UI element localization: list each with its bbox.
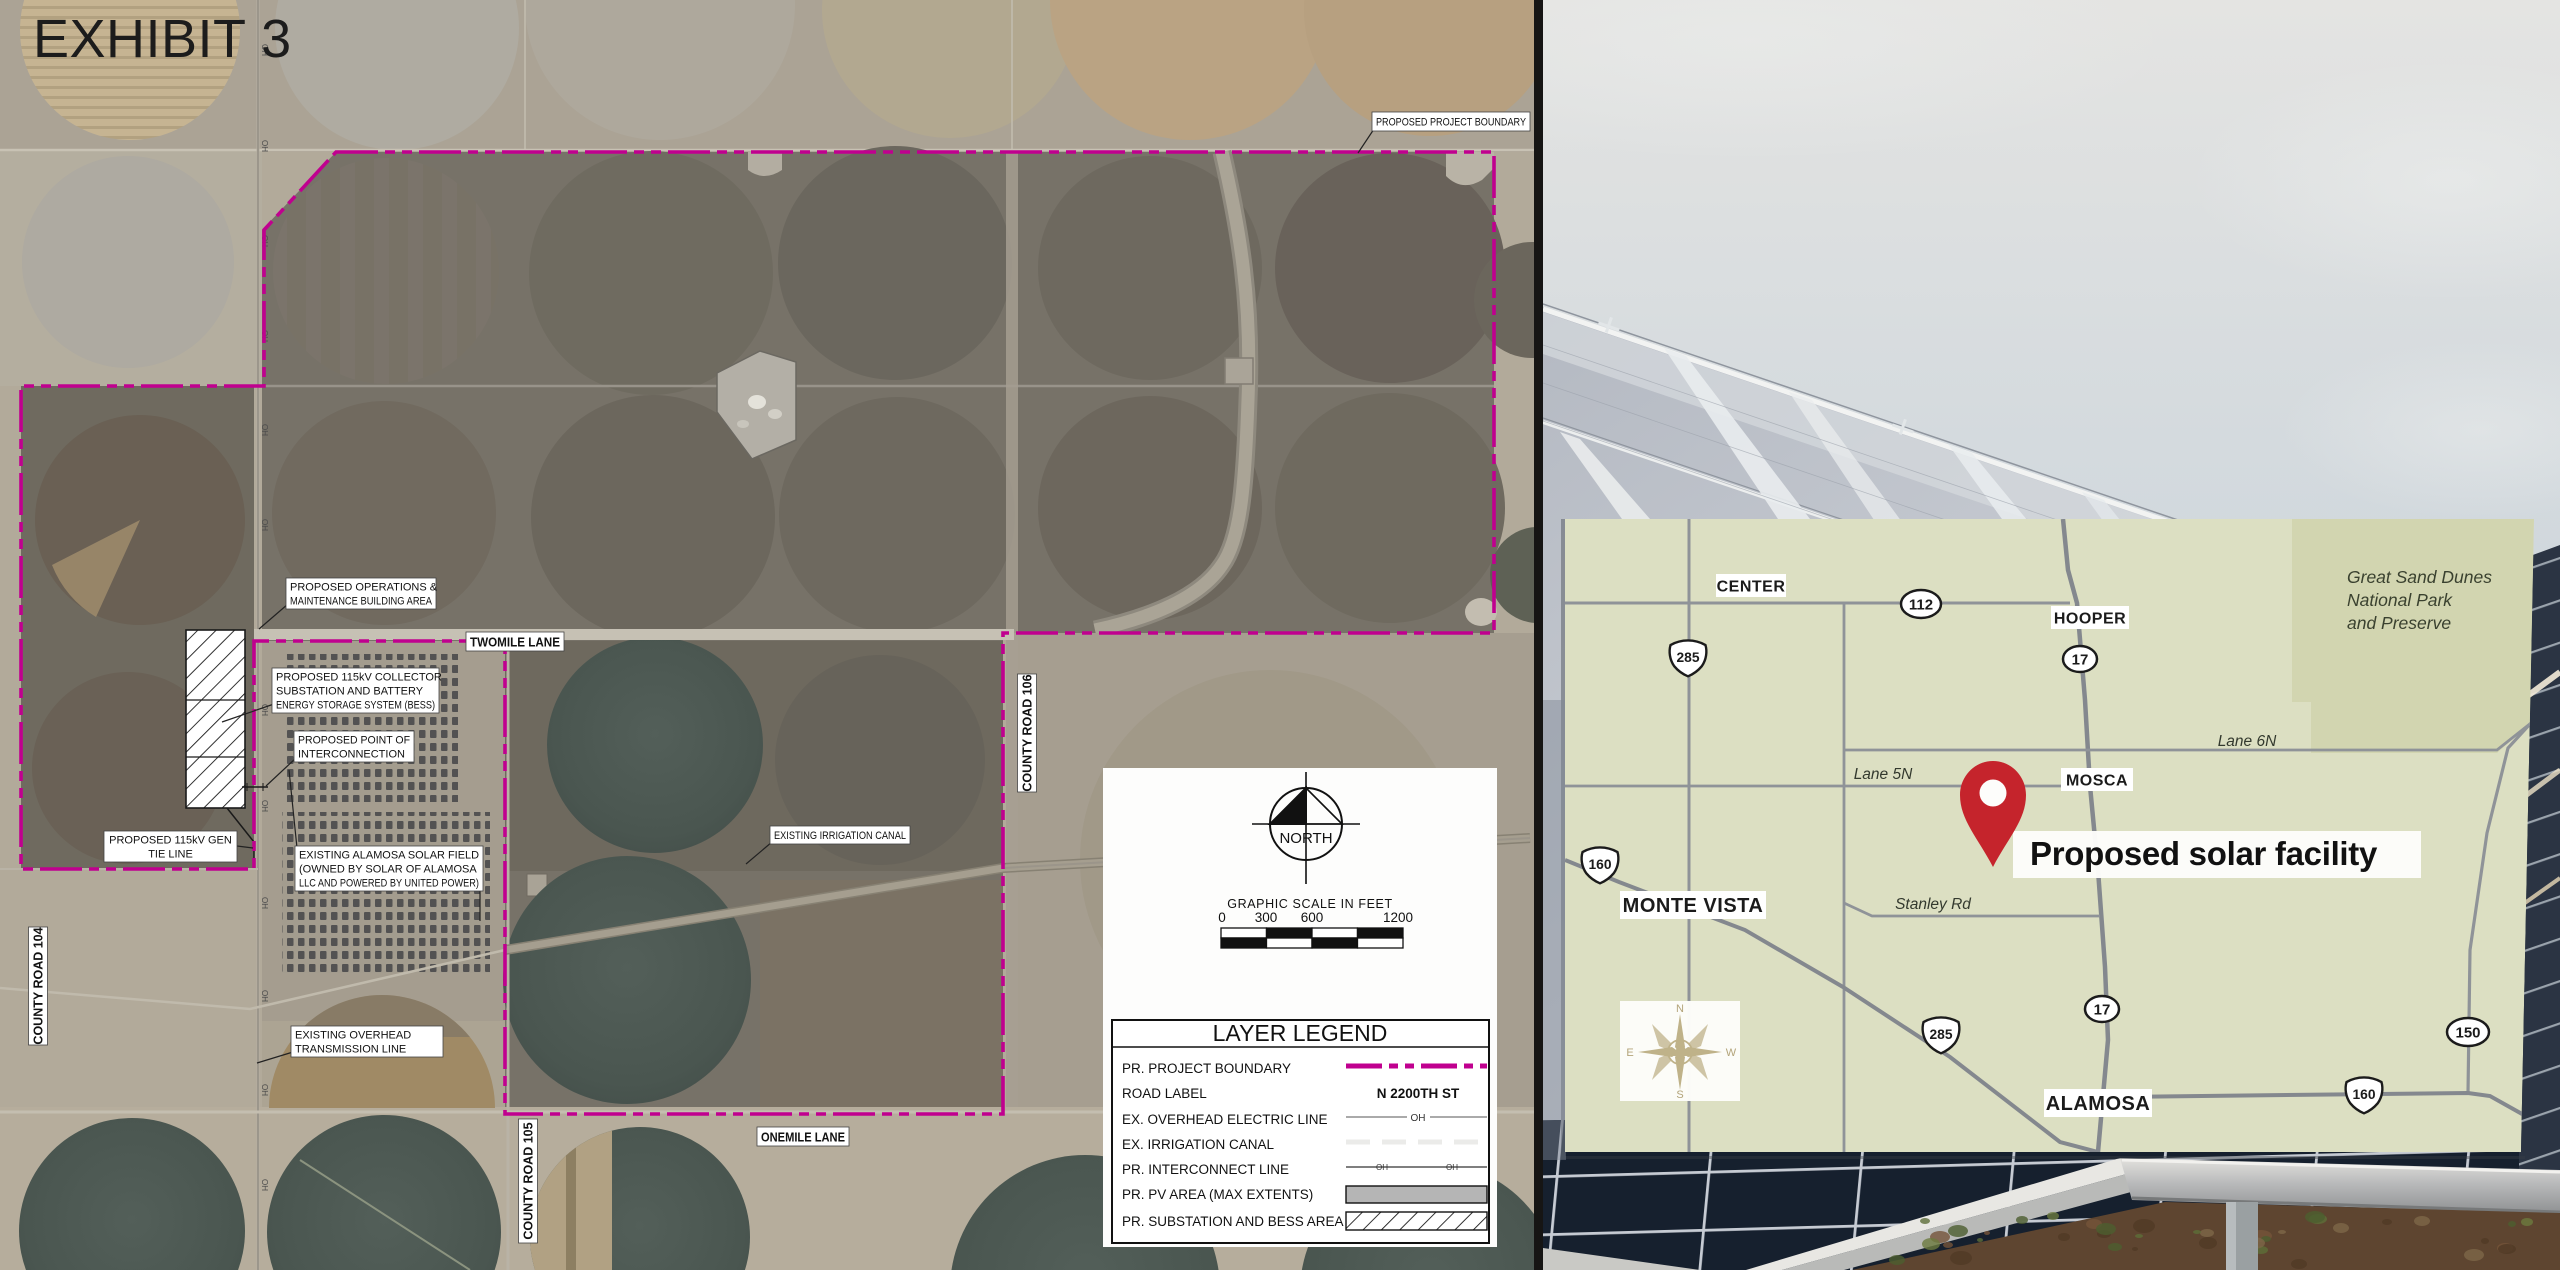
svg-text:PROPOSED 115kV GEN: PROPOSED 115kV GEN	[109, 835, 232, 847]
svg-text:Lane 5N: Lane 5N	[1854, 766, 1913, 783]
svg-text:OH: OH	[260, 519, 269, 531]
svg-text:CENTER: CENTER	[1717, 578, 1786, 595]
svg-text:and Preserve: and Preserve	[2347, 613, 2451, 633]
svg-text:EX. OVERHEAD ELECTRIC LINE: EX. OVERHEAD ELECTRIC LINE	[1122, 1112, 1328, 1127]
svg-text:SUBSTATION AND BATTERY: SUBSTATION AND BATTERY	[276, 686, 424, 698]
svg-text:OH: OH	[260, 424, 269, 436]
svg-text:17: 17	[2094, 1001, 2111, 1018]
svg-text:OH: OH	[260, 897, 269, 909]
svg-text:EXISTING ALAMOSA SOLAR FIELD: EXISTING ALAMOSA SOLAR FIELD	[299, 850, 479, 862]
svg-text:MOSCA: MOSCA	[2066, 772, 2128, 789]
svg-text:ENERGY STORAGE SYSTEM (BESS): ENERGY STORAGE SYSTEM (BESS)	[276, 700, 435, 712]
svg-text:OH: OH	[260, 990, 269, 1002]
svg-text:112: 112	[1909, 596, 1933, 613]
svg-text:PROPOSED 115kV COLLECTOR: PROPOSED 115kV COLLECTOR	[276, 672, 442, 684]
svg-text:Lane 6N: Lane 6N	[2218, 733, 2277, 750]
svg-text:PR. PROJECT BOUNDARY: PR. PROJECT BOUNDARY	[1122, 1061, 1291, 1076]
svg-text:S: S	[1676, 1089, 1683, 1101]
svg-text:ALAMOSA: ALAMOSA	[2046, 1093, 2151, 1115]
svg-text:160: 160	[2352, 1087, 2375, 1102]
svg-text:National Park: National Park	[2347, 590, 2453, 610]
svg-text:TRANSMISSION LINE: TRANSMISSION LINE	[295, 1044, 406, 1056]
svg-text:PROPOSED OPERATIONS &: PROPOSED OPERATIONS &	[290, 582, 438, 594]
svg-text:MONTE VISTA: MONTE VISTA	[1623, 895, 1764, 917]
svg-text:INTERCONNECTION: INTERCONNECTION	[298, 749, 405, 761]
svg-text:EXISTING IRRIGATION CANAL: EXISTING IRRIGATION CANAL	[774, 830, 906, 842]
svg-text:(OWNED BY SOLAR OF ALAMOSA: (OWNED BY SOLAR OF ALAMOSA	[299, 864, 477, 876]
svg-text:N: N	[1676, 1003, 1684, 1015]
svg-text:W: W	[1726, 1047, 1737, 1059]
svg-text:PR. PV AREA (MAX EXTENTS): PR. PV AREA (MAX EXTENTS)	[1122, 1187, 1313, 1202]
svg-text:285: 285	[1676, 650, 1699, 665]
svg-text:300: 300	[1255, 910, 1278, 925]
svg-text:COUNTY ROAD 104: COUNTY ROAD 104	[32, 927, 46, 1044]
svg-text:Great Sand Dunes: Great Sand Dunes	[2347, 567, 2492, 587]
svg-text:17: 17	[2072, 651, 2089, 668]
svg-text:285: 285	[1929, 1027, 1952, 1042]
svg-text:ONEMILE LANE: ONEMILE LANE	[761, 1129, 845, 1144]
svg-text:OH: OH	[1376, 1163, 1388, 1172]
svg-text:GRAPHIC SCALE IN FEET: GRAPHIC SCALE IN FEET	[1227, 897, 1392, 911]
svg-text:NORTH: NORTH	[1279, 830, 1332, 847]
svg-text:600: 600	[1301, 910, 1324, 925]
svg-text:OH: OH	[260, 140, 269, 152]
svg-text:ROAD LABEL: ROAD LABEL	[1122, 1086, 1207, 1101]
svg-text:PR. INTERCONNECT LINE: PR. INTERCONNECT LINE	[1122, 1162, 1289, 1177]
svg-text:150: 150	[2455, 1024, 2480, 1041]
svg-text:E: E	[1626, 1047, 1633, 1059]
svg-text:PROPOSED PROJECT BOUNDARY: PROPOSED PROJECT BOUNDARY	[1376, 117, 1527, 129]
svg-text:EX. IRRIGATION CANAL: EX. IRRIGATION CANAL	[1122, 1137, 1275, 1152]
svg-text:PROPOSED POINT OF: PROPOSED POINT OF	[298, 735, 410, 747]
svg-text:OH: OH	[260, 1179, 269, 1191]
svg-text:0: 0	[1218, 910, 1226, 925]
svg-text:COUNTY ROAD 105: COUNTY ROAD 105	[522, 1122, 536, 1239]
svg-text:COUNTY ROAD 106: COUNTY ROAD 106	[1021, 674, 1035, 791]
svg-text:OH: OH	[1411, 1113, 1426, 1124]
svg-text:MAINTENANCE BUILDING AREA: MAINTENANCE BUILDING AREA	[290, 596, 433, 608]
svg-text:EXISTING OVERHEAD: EXISTING OVERHEAD	[295, 1030, 411, 1042]
svg-text:TIE LINE: TIE LINE	[148, 849, 193, 861]
svg-text:Proposed solar facility: Proposed solar facility	[2030, 835, 2378, 872]
svg-text:LAYER LEGEND: LAYER LEGEND	[1213, 1020, 1388, 1046]
svg-text:PR. SUBSTATION AND BESS AREA: PR. SUBSTATION AND BESS AREA	[1122, 1214, 1344, 1229]
svg-text:OH: OH	[260, 800, 269, 812]
svg-text:OH: OH	[1446, 1163, 1458, 1172]
svg-text:OH: OH	[260, 1084, 269, 1096]
svg-text:160: 160	[1588, 857, 1611, 872]
svg-text:EXHIBIT 3: EXHIBIT 3	[33, 9, 292, 69]
svg-text:N 2200TH ST: N 2200TH ST	[1377, 1086, 1460, 1101]
svg-text:Stanley Rd: Stanley Rd	[1895, 896, 1972, 913]
svg-text:1200: 1200	[1383, 910, 1413, 925]
svg-text:LLC AND POWERED BY UNITED POWE: LLC AND POWERED BY UNITED POWER)	[299, 878, 479, 890]
svg-text:TWOMILE LANE: TWOMILE LANE	[470, 634, 560, 649]
svg-text:HOOPER: HOOPER	[2054, 610, 2126, 627]
